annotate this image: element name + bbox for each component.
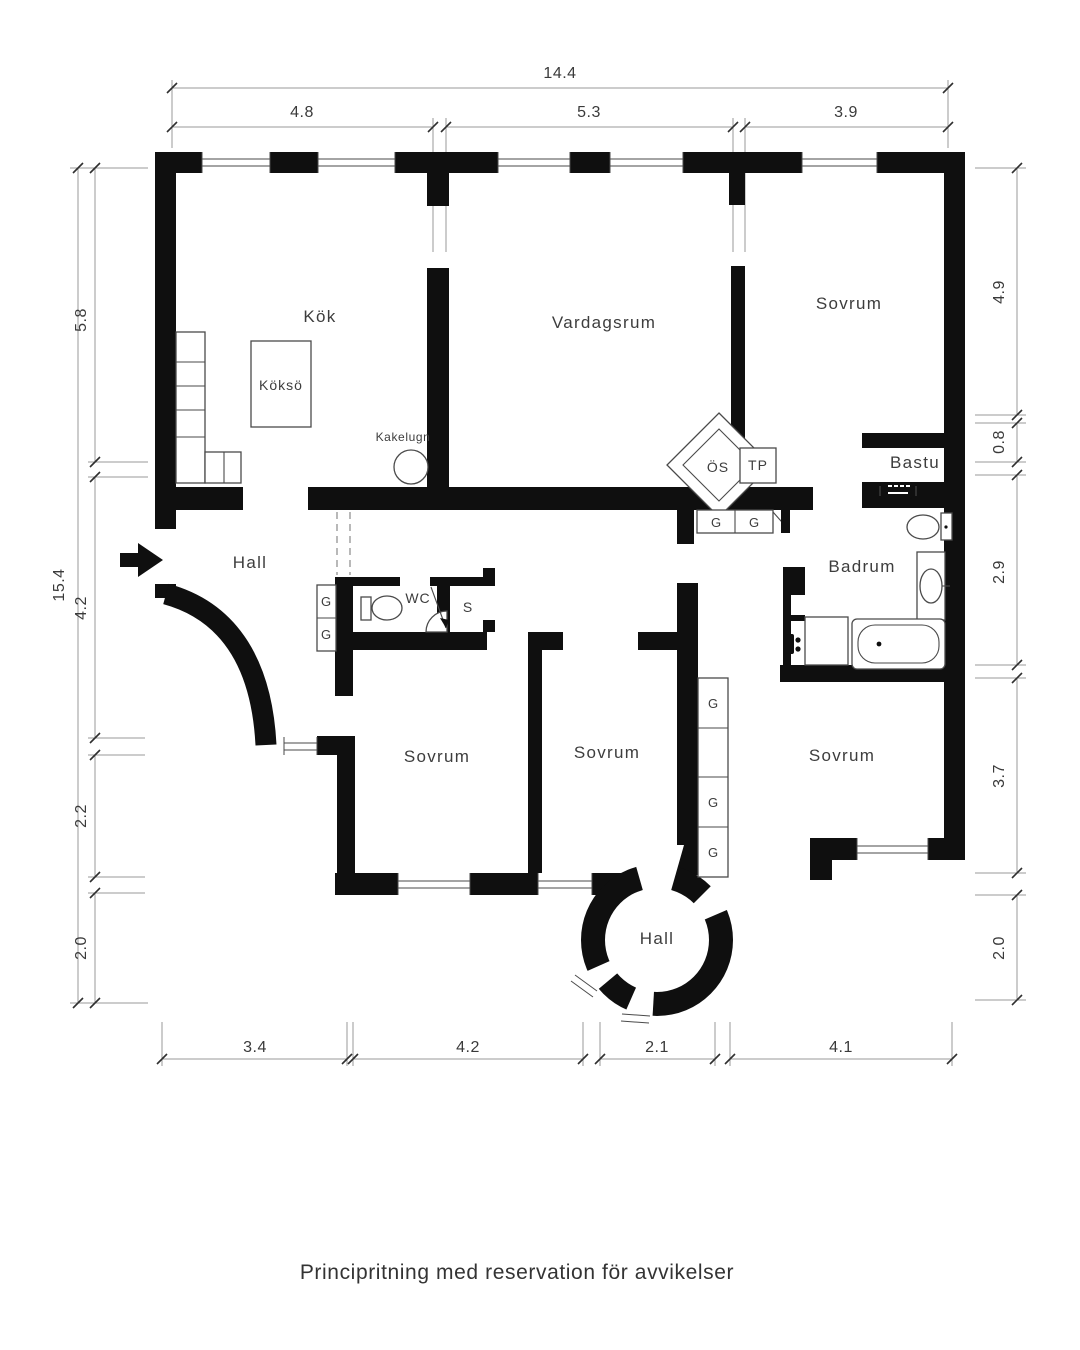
floor-plan-page: 14.4 4.8 5.3 3.9 15.4 5.8 4.2 2.2 2.0 4.… <box>0 0 1080 1350</box>
floor-plan-drawing: 14.4 4.8 5.3 3.9 15.4 5.8 4.2 2.2 2.0 4.… <box>0 0 1080 1350</box>
label-g: G <box>321 594 331 609</box>
dim-bottom-4: 4.1 <box>829 1039 853 1056</box>
dim-right-1: 4.9 <box>991 280 1008 304</box>
window <box>398 873 470 895</box>
window <box>802 152 877 173</box>
caption: Principritning med reservation för avvik… <box>300 1261 734 1284</box>
entrance-arrow-icon <box>120 543 163 577</box>
dim-bottom-1: 3.4 <box>243 1039 267 1056</box>
kitchen-counter <box>176 332 241 483</box>
dim-bottom-2: 4.2 <box>456 1039 480 1056</box>
label-g: G <box>749 515 759 530</box>
opening-dashed-lines <box>337 512 350 575</box>
label-os: ÖS <box>707 458 729 475</box>
room-label-wc: WC <box>405 590 430 606</box>
label-g: G <box>711 515 721 530</box>
dim-left-4: 2.0 <box>73 936 90 960</box>
room-label-hall-round: Hall <box>640 929 675 948</box>
room-label-hall: Hall <box>233 553 268 572</box>
dim-left-2: 4.2 <box>73 596 90 620</box>
toilet-icon <box>361 596 402 620</box>
shower-cabinet <box>805 617 848 665</box>
window <box>498 152 570 173</box>
room-label-badrum: Badrum <box>828 557 895 576</box>
window <box>857 838 928 860</box>
window <box>318 152 395 173</box>
dim-right-3: 2.9 <box>991 560 1008 584</box>
window <box>538 873 592 895</box>
dim-top-1: 4.8 <box>290 104 314 121</box>
dim-right-2: 0.8 <box>991 430 1008 454</box>
toilet-icon <box>907 513 952 540</box>
room-label-s: S <box>463 599 473 615</box>
label-g: G <box>708 696 718 711</box>
dim-right-4: 3.7 <box>991 764 1008 788</box>
dim-left-overall: 15.4 <box>51 568 68 601</box>
dim-right-5: 2.0 <box>991 936 1008 960</box>
room-label-sovrum-sm: Sovrum <box>574 743 640 762</box>
tiled-stove-icon <box>394 450 428 484</box>
room-label-kokso: Köksö <box>259 377 303 393</box>
label-g: G <box>321 627 331 642</box>
label-tp: TP <box>748 457 768 473</box>
room-label-sovrum-se: Sovrum <box>809 746 875 765</box>
label-kakelugn: Kakelugn <box>376 430 431 444</box>
sauna-heater-icon <box>880 482 916 499</box>
dim-left-1: 5.8 <box>73 308 90 332</box>
dim-left-3: 2.2 <box>73 804 90 828</box>
dim-top-overall: 14.4 <box>543 65 576 82</box>
room-label-kok: Kök <box>303 307 336 326</box>
room-label-sovrum-sw: Sovrum <box>404 747 470 766</box>
label-g: G <box>708 845 718 860</box>
faucet-icon <box>786 634 801 654</box>
window <box>610 152 683 173</box>
window <box>202 152 270 173</box>
bathtub-icon <box>852 619 945 669</box>
dim-top-3: 3.9 <box>834 104 858 121</box>
label-g: G <box>708 795 718 810</box>
room-label-bastu: Bastu <box>890 453 940 472</box>
vanity-sink-icon <box>917 552 950 620</box>
dim-top-2: 5.3 <box>577 104 601 121</box>
room-label-vardagsrum: Vardagsrum <box>552 313 656 332</box>
window <box>284 737 317 755</box>
windows <box>202 152 928 895</box>
dim-bottom-3: 2.1 <box>645 1039 669 1056</box>
room-label-sovrum-ne: Sovrum <box>816 294 882 313</box>
